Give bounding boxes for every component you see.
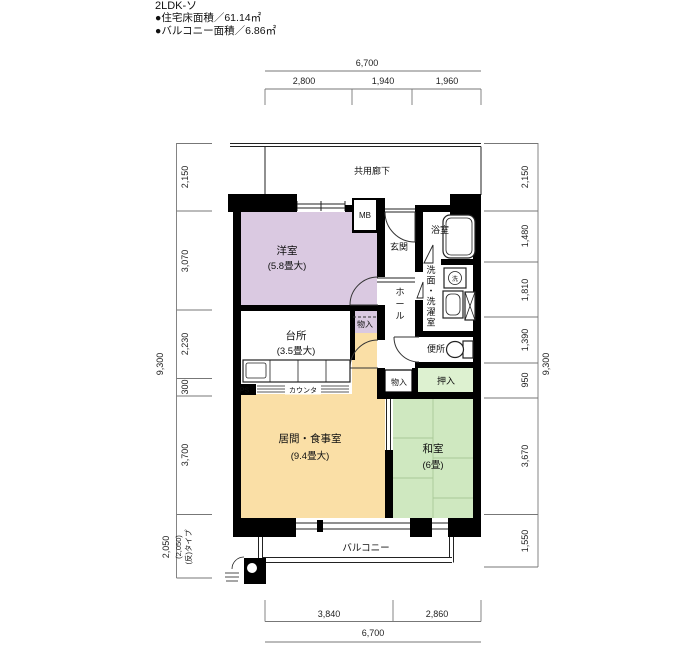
genkan-label: 玄関 (390, 241, 408, 252)
dim-left-overall: 9,300 (155, 353, 165, 376)
dim-left-seg2: 3,070 (180, 250, 190, 273)
japanese-room-label: 和室 (423, 442, 444, 455)
floor-plan-drawing: 6,700 2,800 1,940 1,960 3,840 2,860 6,70… (0, 0, 700, 650)
toilet-fixture (447, 341, 474, 358)
dim-left-seg6: 2,050 (161, 536, 171, 559)
bathtub (443, 215, 475, 258)
washroom-label: 洗面・洗濯室 (426, 264, 435, 328)
dim-left-seg3: 2,230 (180, 333, 190, 356)
dim-bottom-seg2: 2,860 (426, 609, 449, 619)
dim-right-seg1: 2,150 (520, 166, 530, 189)
dim-right-seg4: 1,390 (520, 329, 530, 352)
dim-right-overall: 9,300 (541, 353, 551, 376)
pipe-space-hatch (465, 292, 475, 320)
toilet-label: 便所 (427, 343, 445, 354)
dim-top-total: 6,700 (356, 58, 379, 68)
hall-label: ホール (395, 287, 404, 321)
kitchen-counter (243, 360, 350, 382)
dim-right-seg2: 1,480 (520, 225, 530, 248)
living-size-label: (9.4畳大) (291, 450, 330, 462)
dim-left-seg5: 3,700 (180, 444, 190, 467)
meter-box-label: MB (359, 211, 371, 220)
kitchen-label: 台所 (286, 329, 307, 342)
dim-top-seg2: 1,940 (372, 76, 395, 86)
counter-label: カウンタ (289, 386, 317, 395)
dim-right-seg7: 1,550 (520, 530, 530, 553)
dim-top-seg3: 1,960 (436, 76, 459, 86)
dim-right-seg5: 950 (520, 372, 530, 387)
ps-label: PS (240, 388, 250, 395)
dim-left-alt-note: (反)タイプ (183, 529, 193, 564)
plan-title: 2LDK-ソ (155, 0, 197, 12)
western-room-label: 洋室 (277, 244, 298, 257)
storage-upper-label: 物入 (357, 319, 373, 329)
dim-left-seg1: 2,150 (180, 166, 190, 189)
corridor-label: 共用廊下 (354, 165, 390, 176)
dim-right-seg6: 3,670 (520, 445, 530, 468)
floor-plan-page: 6,700 2,800 1,940 1,960 3,840 2,860 6,70… (0, 0, 700, 650)
bath-label: 浴室 (431, 224, 449, 235)
washer-mark-label: 洗 (452, 275, 458, 283)
living-label: 居間・食事室 (279, 432, 342, 445)
balcony-label: バルコニー (342, 543, 389, 554)
japanese-room-size-label: (6畳) (422, 460, 443, 471)
dim-top-seg1: 2,800 (293, 76, 316, 86)
kitchen-size-label: (3.5畳大) (277, 345, 316, 357)
western-room-size-label: (5.8畳大) (268, 260, 307, 272)
dim-right-seg3: 1,810 (520, 279, 530, 302)
floor-area-line: ●住宅床面積／61.14㎡ (155, 11, 262, 24)
vanity-sink (443, 291, 463, 318)
closet-label: 押入 (437, 375, 455, 386)
storage-lower-label: 物入 (391, 377, 407, 387)
dim-bottom-seg1: 3,840 (318, 609, 341, 619)
dim-left-alt: (2,050) (174, 535, 183, 559)
dim-left-seg4: 300 (180, 379, 190, 394)
balcony-area-line: ●バルコニー面積／6.86㎡ (155, 24, 277, 37)
dim-bottom-total: 6,700 (362, 628, 385, 638)
